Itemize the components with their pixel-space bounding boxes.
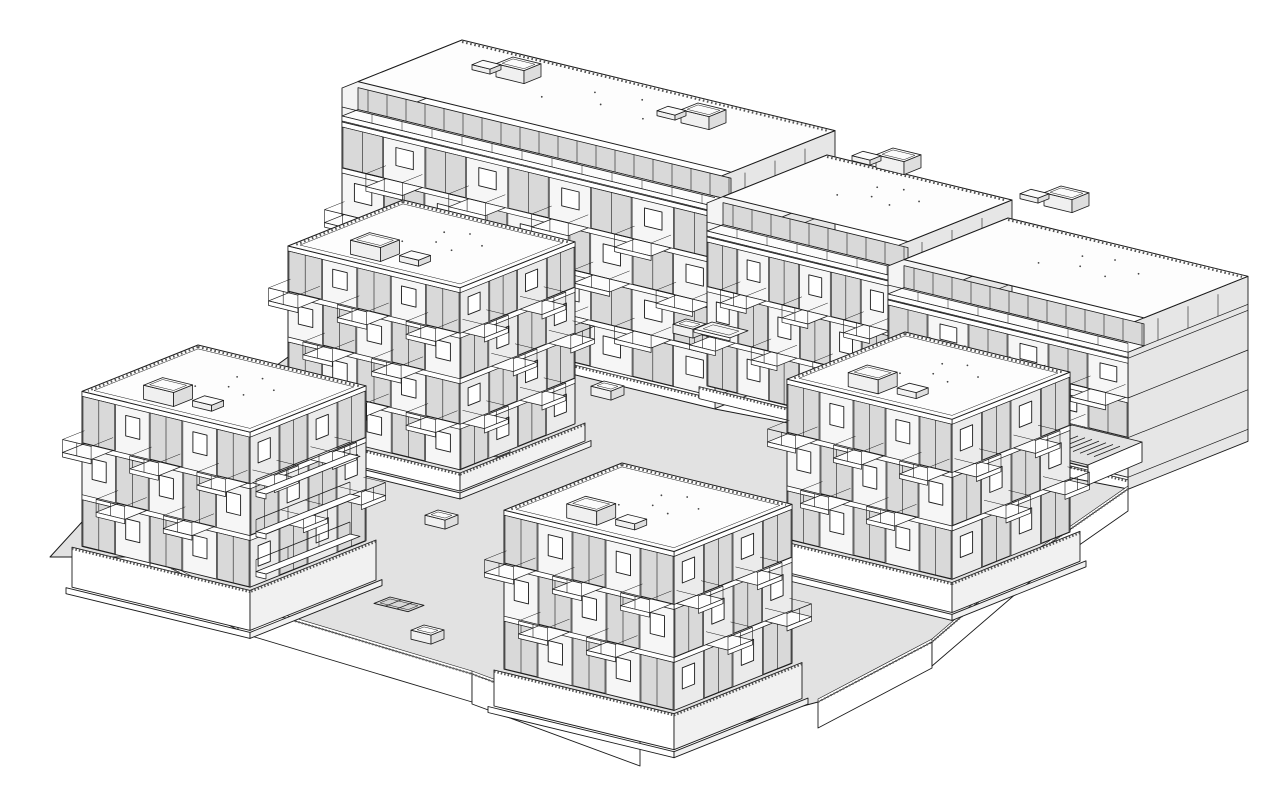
tower-block-east: [768, 332, 1090, 620]
tower-block-west: [63, 345, 386, 638]
drawing-canvas: [0, 0, 1280, 788]
tower-block-south: [485, 463, 812, 758]
housing-complex: [50, 40, 1248, 766]
site-axonometric-drawing: [0, 0, 1280, 788]
